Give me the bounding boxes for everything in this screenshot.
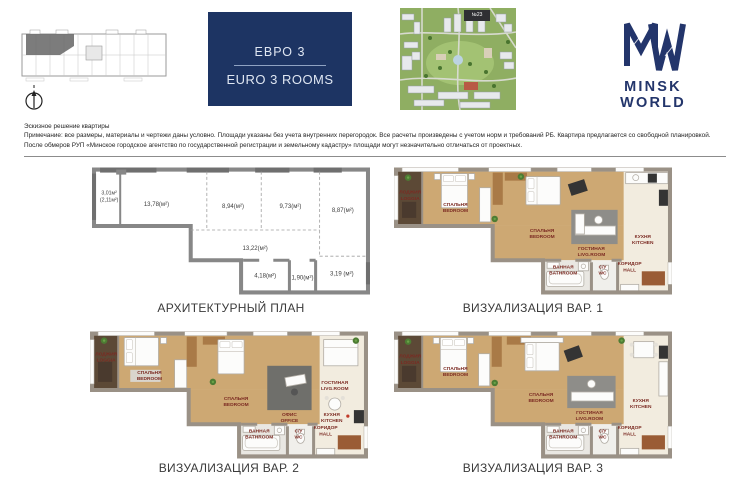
area-bedroom1: 13,78(м²) [144,202,169,208]
area-living: 9,73(м²) [279,204,301,210]
room-bedroom2-en: BEDROOM [529,234,554,240]
room-living-ru: ГОСТИНАЯ [321,380,348,386]
minsk-world-logo: MINSK WORLD [590,14,716,106]
room-wc-en: WC [294,434,303,440]
room-bedroom2-en: BEDROOM [223,402,248,408]
building-number-badge: №23 [464,10,490,21]
room-bedroom1-ru: СПАЛЬНЯ [443,366,468,372]
room-loggia-ru: ЛОДЖИЯ [399,354,421,360]
visualization-plan-1: ЛОДЖИЯ LOGGIA СПАЛЬНЯ BEDROOM СПАЛЬНЯ BE… [394,167,672,295]
divider [234,65,326,66]
room-bath-ru: ВАННАЯ [553,264,574,270]
room-wc-en: WC [598,270,607,276]
area-loggia: 3,01м² [101,191,117,197]
area-loggia-reduced: (2,11м²) [100,197,119,203]
mw-monogram-icon [610,14,696,72]
room-wc-en: WC [598,434,607,440]
visualization-plan-3: ЛОДЖИЯ LOGGIA СПАЛЬНЯ BEDROOM СПАЛЬНЯ BE… [394,331,672,459]
architectural-plan: 3,01м² (2,11м²) 13,78(м²) 8,94(м²) 9,73(… [92,167,370,295]
notes-block: Эскизное решение квартиры Примечание: вс… [24,122,726,150]
notes-line3: После обмеров РУП «Минское городское аге… [24,141,726,150]
caption-viz2: ВИЗУАЛИЗАЦИЯ ВАР. 2 [90,461,368,475]
unit-type-ru: ЕВРО 3 [208,45,352,59]
room-loggia-ru: ЛОДЖИЯ [95,352,117,358]
aerial-photo: №23 [400,8,516,110]
room-office-ru: ОФИС [282,412,297,418]
room-bedroom2-ru: СПАЛЬНЯ [224,396,249,402]
room-bath-en: BATHROOM [549,434,577,440]
area-corridor: 13,22(м²) [243,246,268,252]
room-loggia-ru: ЛОДЖИЯ [399,190,421,196]
notes-line2: Примечание: все размеры, материалы и чер… [24,131,726,140]
building-key-plan [16,12,176,117]
caption-viz3: ВИЗУАЛИЗАЦИЯ ВАР. 3 [394,461,672,475]
room-living-en: LIVG.ROOM [321,386,349,392]
area-hall: 3,19 (м²) [330,271,354,277]
room-bedroom2-ru: СПАЛЬНЯ [530,228,555,234]
room-bedroom2-ru: СПАЛЬНЯ [529,392,554,398]
room-bedroom2-en: BEDROOM [528,398,553,404]
unit-type-en: EURO 3 ROOMS [208,72,352,87]
room-bedroom1-en: BEDROOM [137,376,162,382]
area-bedroom2: 8,94(м²) [222,204,244,210]
caption-viz1: ВИЗУАЛИЗАЦИЯ ВАР. 1 [394,301,672,315]
room-bath-en: BATHROOM [549,270,577,276]
room-bath-ru: ВАННАЯ [249,428,270,434]
room-kitchen-en: KITCHEN [321,418,343,424]
room-hall-ru: КОРИДОР [618,425,643,431]
room-bath-ru: ВАННАЯ [553,428,574,434]
room-hall-en: HALL [623,267,636,273]
room-hall-ru: КОРИДОР [314,425,339,431]
room-loggia-en: LOGGIA [401,360,421,366]
room-loggia-en: LOGGIA [401,196,421,202]
room-living-en: LIVG.ROOM [576,416,604,422]
room-bedroom1-en: BEDROOM [443,208,468,214]
room-wc-ru: С/У [599,428,608,434]
room-living-en: LIVG.ROOM [578,252,606,258]
area-bathroom: 4,18(м²) [254,273,276,279]
aerial-render [400,8,516,110]
unit-type-box: ЕВРО 3 EURO 3 ROOMS [208,12,352,106]
room-bedroom1-ru: СПАЛЬНЯ [137,370,162,376]
room-bedroom1-en: BEDROOM [443,372,468,378]
room-loggia-en: LOGGIA [97,358,117,364]
room-hall-en: HALL [623,431,636,437]
notes-line1: Эскизное решение квартиры [24,122,726,131]
room-bedroom1-ru: СПАЛЬНЯ [443,202,468,208]
room-kitchen-en: KITCHEN [630,404,652,410]
room-living-ru: ГОСТИНАЯ [576,410,603,416]
room-kitchen-ru: КУХНЯ [633,398,650,404]
room-living-ru: ГОСТИНАЯ [578,246,605,252]
horizontal-rule [24,156,726,157]
area-wc: 1,90(м²) [292,275,314,281]
room-kitchen-en: KITCHEN [632,240,654,246]
room-hall-ru: КОРИДОР [618,261,643,267]
room-wc-ru: С/У [599,264,608,270]
room-kitchen-ru: КУХНЯ [635,234,652,240]
compass-icon [26,85,42,109]
area-kitchen: 8,87(м²) [332,208,354,214]
room-kitchen-ru: КУХНЯ [324,412,341,418]
room-wc-ru: С/У [295,428,304,434]
logo-wordmark: MINSK WORLD [590,79,716,111]
room-hall-en: HALL [319,431,332,437]
room-bath-en: BATHROOM [245,434,273,440]
caption-architectural: АРХИТЕКТУРНЫЙ ПЛАН [92,301,370,315]
brochure-page: ЕВРО 3 EURO 3 ROOMS [0,0,750,487]
visualization-plan-2: ЛОДЖИЯ LOGGIA СПАЛЬНЯ BEDROOM СПАЛЬНЯ BE… [90,331,368,459]
room-office-en: OFFICE [281,418,299,424]
